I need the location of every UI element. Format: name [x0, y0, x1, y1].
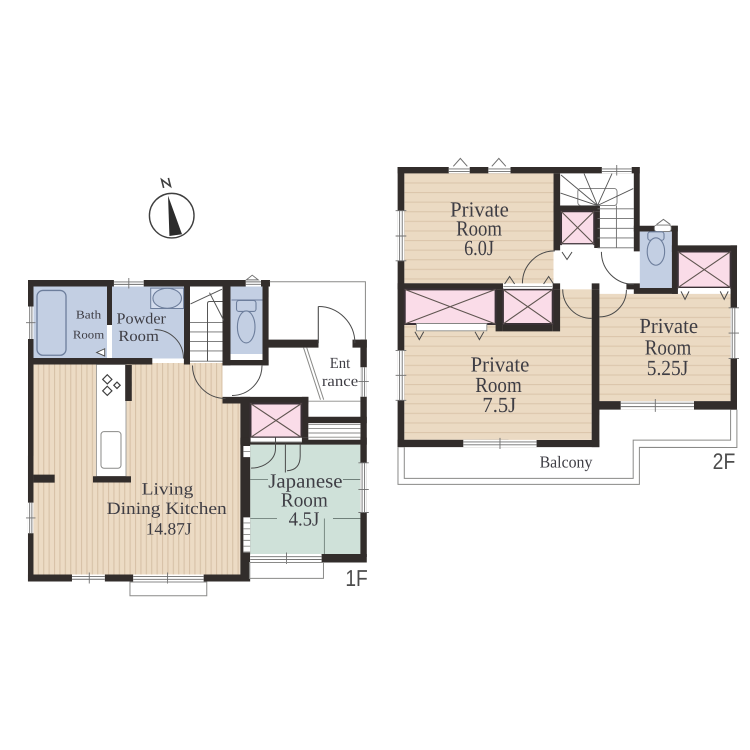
svg-text:Living: Living: [142, 480, 194, 499]
svg-text:Room: Room: [73, 328, 104, 342]
svg-text:Ent: Ent: [330, 355, 351, 372]
svg-text:rance: rance: [322, 373, 358, 390]
svg-text:14.87J: 14.87J: [146, 520, 192, 539]
svg-text:Room: Room: [118, 328, 159, 345]
svg-text:4.5J: 4.5J: [289, 508, 320, 530]
svg-text:6.0J: 6.0J: [464, 236, 494, 260]
svg-text:Balcony: Balcony: [540, 453, 593, 472]
svg-text:7.5J: 7.5J: [482, 393, 516, 417]
svg-text:2F: 2F: [713, 449, 736, 474]
svg-text:Powder: Powder: [117, 311, 167, 328]
svg-text:Dining Kitchen: Dining Kitchen: [107, 499, 227, 518]
svg-text:1F: 1F: [345, 565, 367, 591]
svg-text:Bath: Bath: [76, 308, 101, 322]
svg-text:5.25J: 5.25J: [647, 356, 689, 380]
